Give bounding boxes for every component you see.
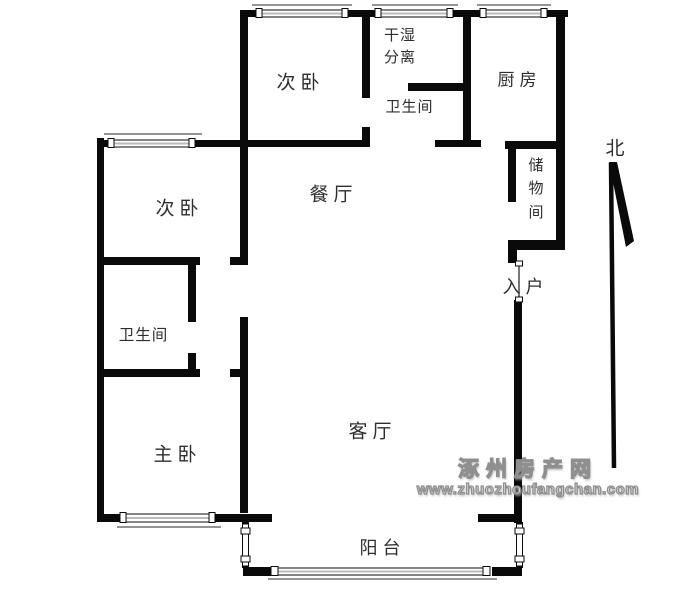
window-post	[271, 567, 278, 576]
wall-segment	[362, 127, 370, 147]
room-label-bathroom-left: 卫生间	[118, 323, 169, 345]
window-bands	[110, 10, 547, 575]
north-arrow	[609, 162, 634, 468]
window-post	[209, 513, 215, 523]
wall-segment	[478, 514, 518, 522]
wall-segment	[556, 10, 565, 250]
window-post	[515, 556, 524, 562]
wall-segment	[408, 83, 463, 91]
wall-segment	[435, 140, 481, 147]
window-post	[480, 9, 486, 18]
window-posts	[108, 9, 547, 576]
room-label-bathroom-top: 卫生间	[384, 96, 433, 117]
wall-segment	[508, 141, 516, 202]
room-label-drywet: 干湿分离	[383, 26, 417, 70]
wall-segment	[97, 257, 200, 265]
window-post	[256, 9, 262, 18]
window-post	[189, 139, 195, 148]
wall-segment	[508, 240, 565, 250]
wall-segment	[514, 300, 522, 523]
window-post	[447, 9, 453, 18]
entry-door-post	[516, 261, 523, 266]
window-post	[120, 513, 126, 523]
window-post	[241, 528, 250, 534]
room-label-balcony: 阳台	[355, 534, 406, 560]
window-sill-lines	[104, 5, 551, 579]
wall-segment	[240, 317, 248, 513]
room-label-bedroom2-top: 次卧	[271, 68, 324, 95]
wall-segment	[97, 369, 200, 377]
wall-segment	[362, 10, 370, 98]
room-label-bedroom2-left: 次卧	[150, 194, 203, 221]
wall-segment	[188, 257, 196, 322]
wall-segment	[97, 138, 104, 522]
window-post	[541, 9, 547, 18]
compass-north-label: 北	[600, 134, 629, 161]
wall-segment	[492, 567, 522, 576]
wall-segment	[240, 10, 248, 265]
floor-plan-drawing	[0, 0, 680, 600]
window-post	[108, 139, 114, 148]
floor-plan-canvas: 次卧 干湿分离 卫生间 厨房 储物间 餐厅 入户 次卧 卫生间 主卧 客厅 阳台…	[0, 0, 680, 600]
room-label-storage: 储物间	[528, 155, 545, 225]
room-label-dining: 餐厅	[304, 180, 357, 207]
room-label-entry: 入户	[498, 273, 549, 299]
wall-segment	[230, 257, 248, 265]
room-label-kitchen: 厨房	[493, 66, 542, 91]
wall-segment	[463, 10, 471, 147]
north-arrow-shaft	[611, 163, 614, 468]
room-label-living: 客厅	[343, 417, 396, 444]
windows	[104, 5, 551, 579]
window-post	[342, 9, 348, 18]
window-post	[375, 9, 381, 18]
window-post	[241, 556, 250, 562]
room-label-master: 主卧	[148, 440, 201, 467]
wall-segment	[230, 369, 248, 377]
wall-segment	[243, 567, 273, 576]
window-post	[515, 528, 524, 534]
window-post	[483, 567, 490, 576]
